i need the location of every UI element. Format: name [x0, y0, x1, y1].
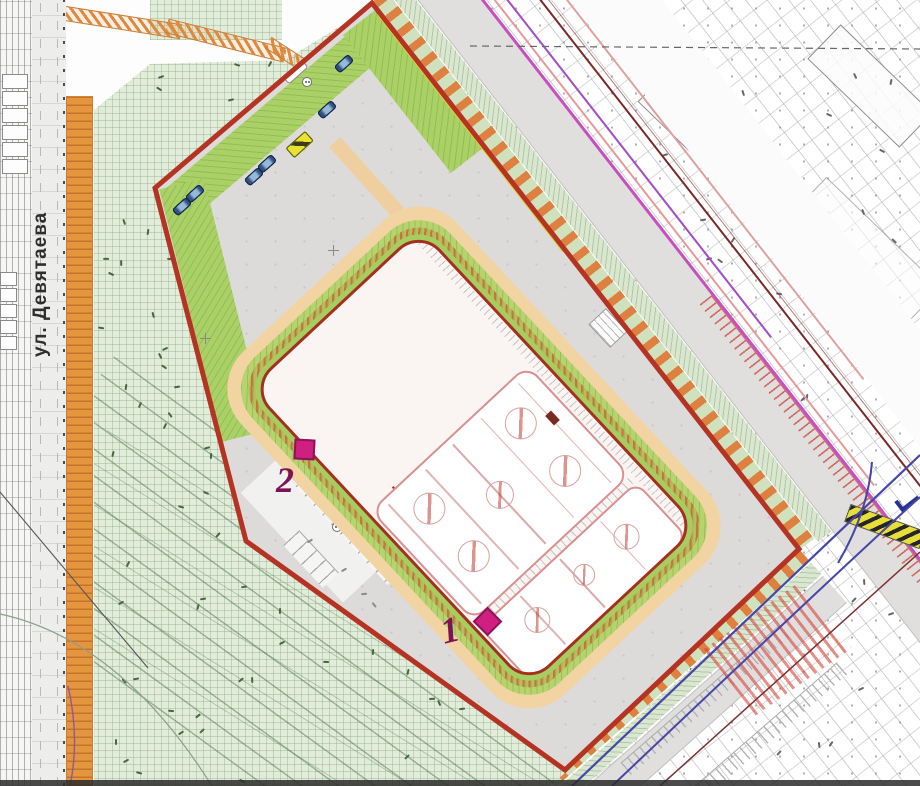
marker-2-label: 2: [276, 462, 294, 498]
dashed-survey-line: [470, 46, 920, 49]
park-path-line: [0, 614, 212, 786]
marker-2-square: [293, 438, 315, 460]
maroon-utility-line: [660, 552, 920, 786]
blue-utility-line: [572, 455, 920, 786]
site-boundary: [155, 3, 799, 770]
purple-utility-line: [68, 686, 75, 786]
line-overlay: [0, 0, 920, 786]
blue-utility-branch: [838, 462, 872, 563]
blue-utility-line: [612, 497, 920, 786]
scan-edge-strip: [0, 780, 920, 786]
diagonal-survey-line: [0, 492, 148, 668]
site-plan-map: ул. Девятаева: [0, 0, 920, 786]
